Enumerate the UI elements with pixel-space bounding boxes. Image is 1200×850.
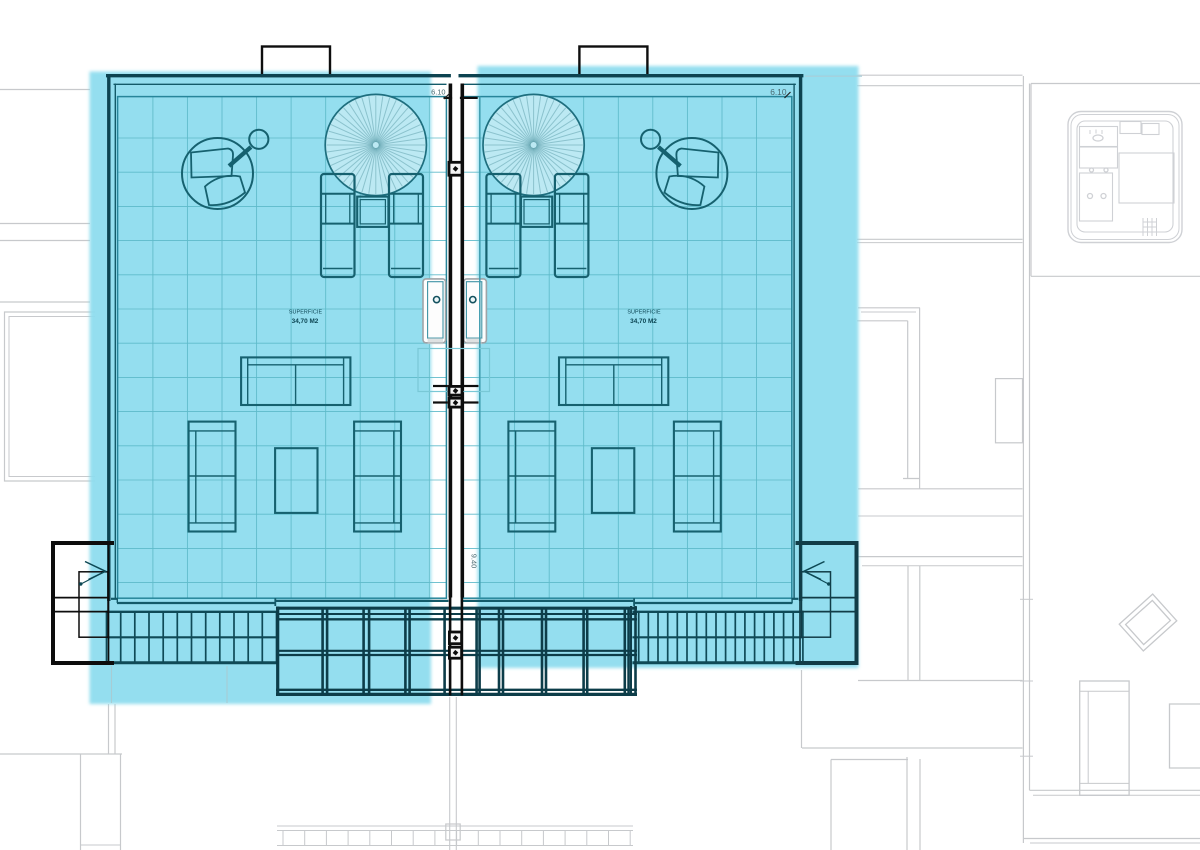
svg-text:SUPERFICIE: SUPERFICIE xyxy=(627,310,661,316)
svg-text:34,70 M2: 34,70 M2 xyxy=(292,318,319,325)
svg-text:6.10: 6.10 xyxy=(770,87,787,97)
svg-text:9.40: 9.40 xyxy=(470,554,479,568)
svg-text:34,70 M2: 34,70 M2 xyxy=(630,318,657,325)
svg-text:6.10: 6.10 xyxy=(431,88,445,97)
svg-text:SUPERFICIE: SUPERFICIE xyxy=(289,310,323,316)
